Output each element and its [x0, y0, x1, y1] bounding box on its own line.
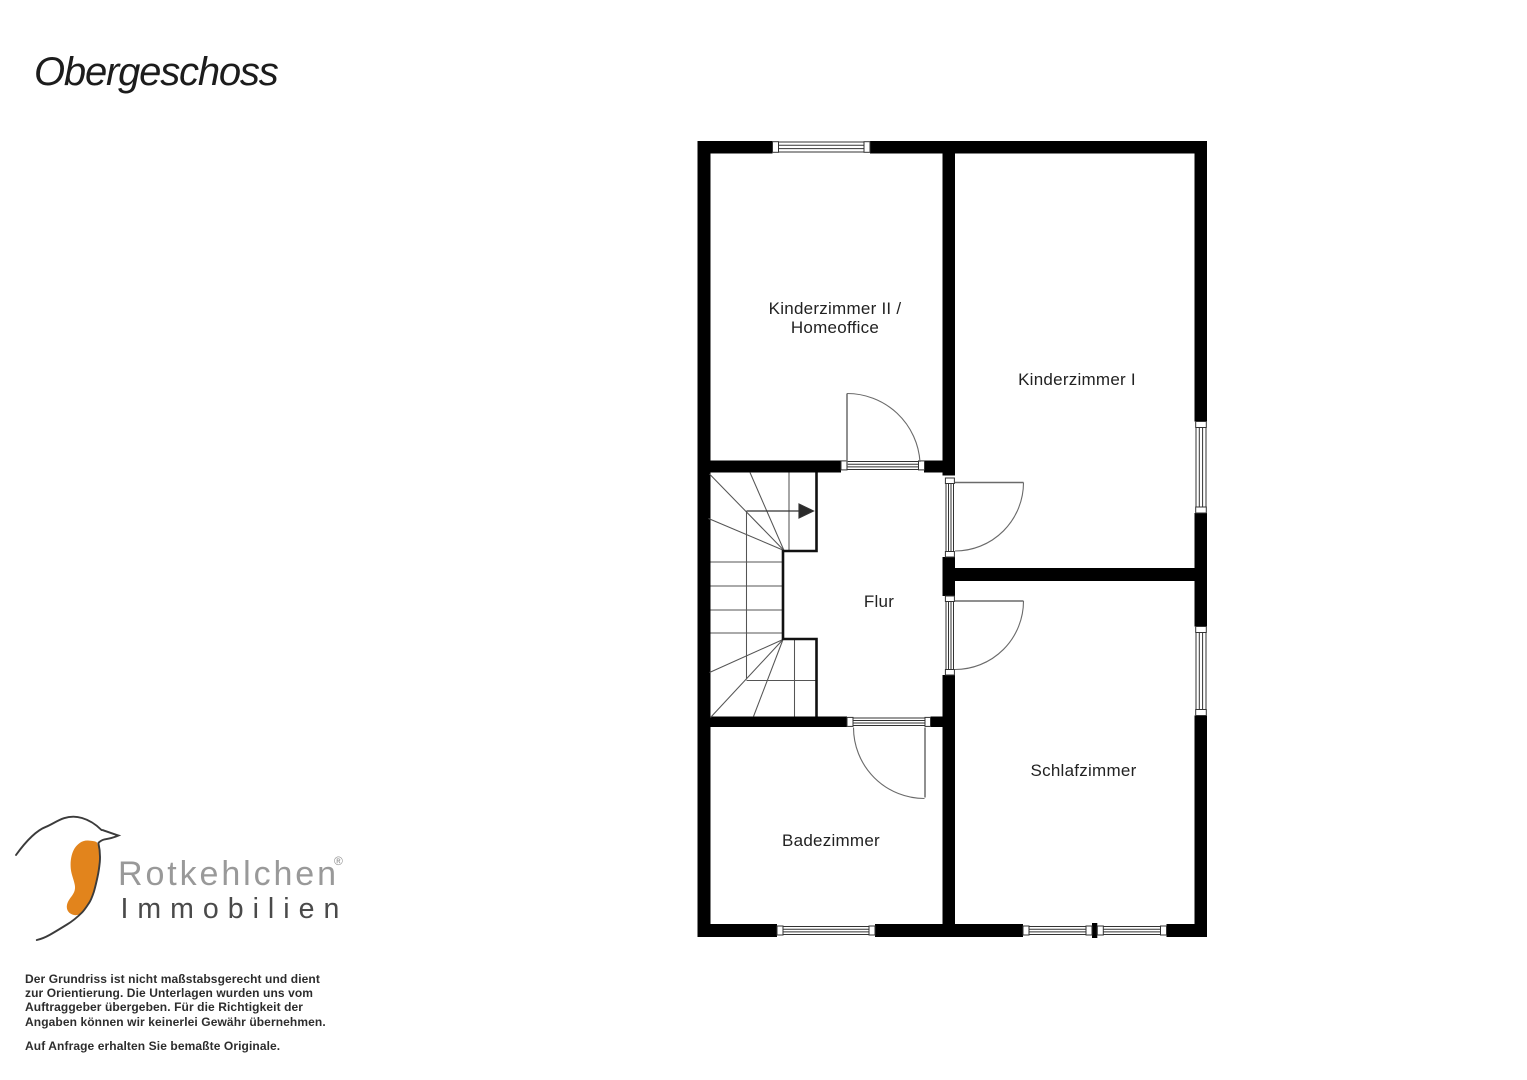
- svg-text:Flur: Flur: [864, 592, 894, 611]
- svg-text:Badezimmer: Badezimmer: [782, 831, 880, 850]
- svg-text:Kinderzimmer I: Kinderzimmer I: [1018, 370, 1136, 389]
- svg-text:Homeoffice: Homeoffice: [791, 318, 879, 337]
- svg-text:Kinderzimmer II /: Kinderzimmer II /: [769, 299, 902, 318]
- svg-text:Schlafzimmer: Schlafzimmer: [1031, 761, 1137, 780]
